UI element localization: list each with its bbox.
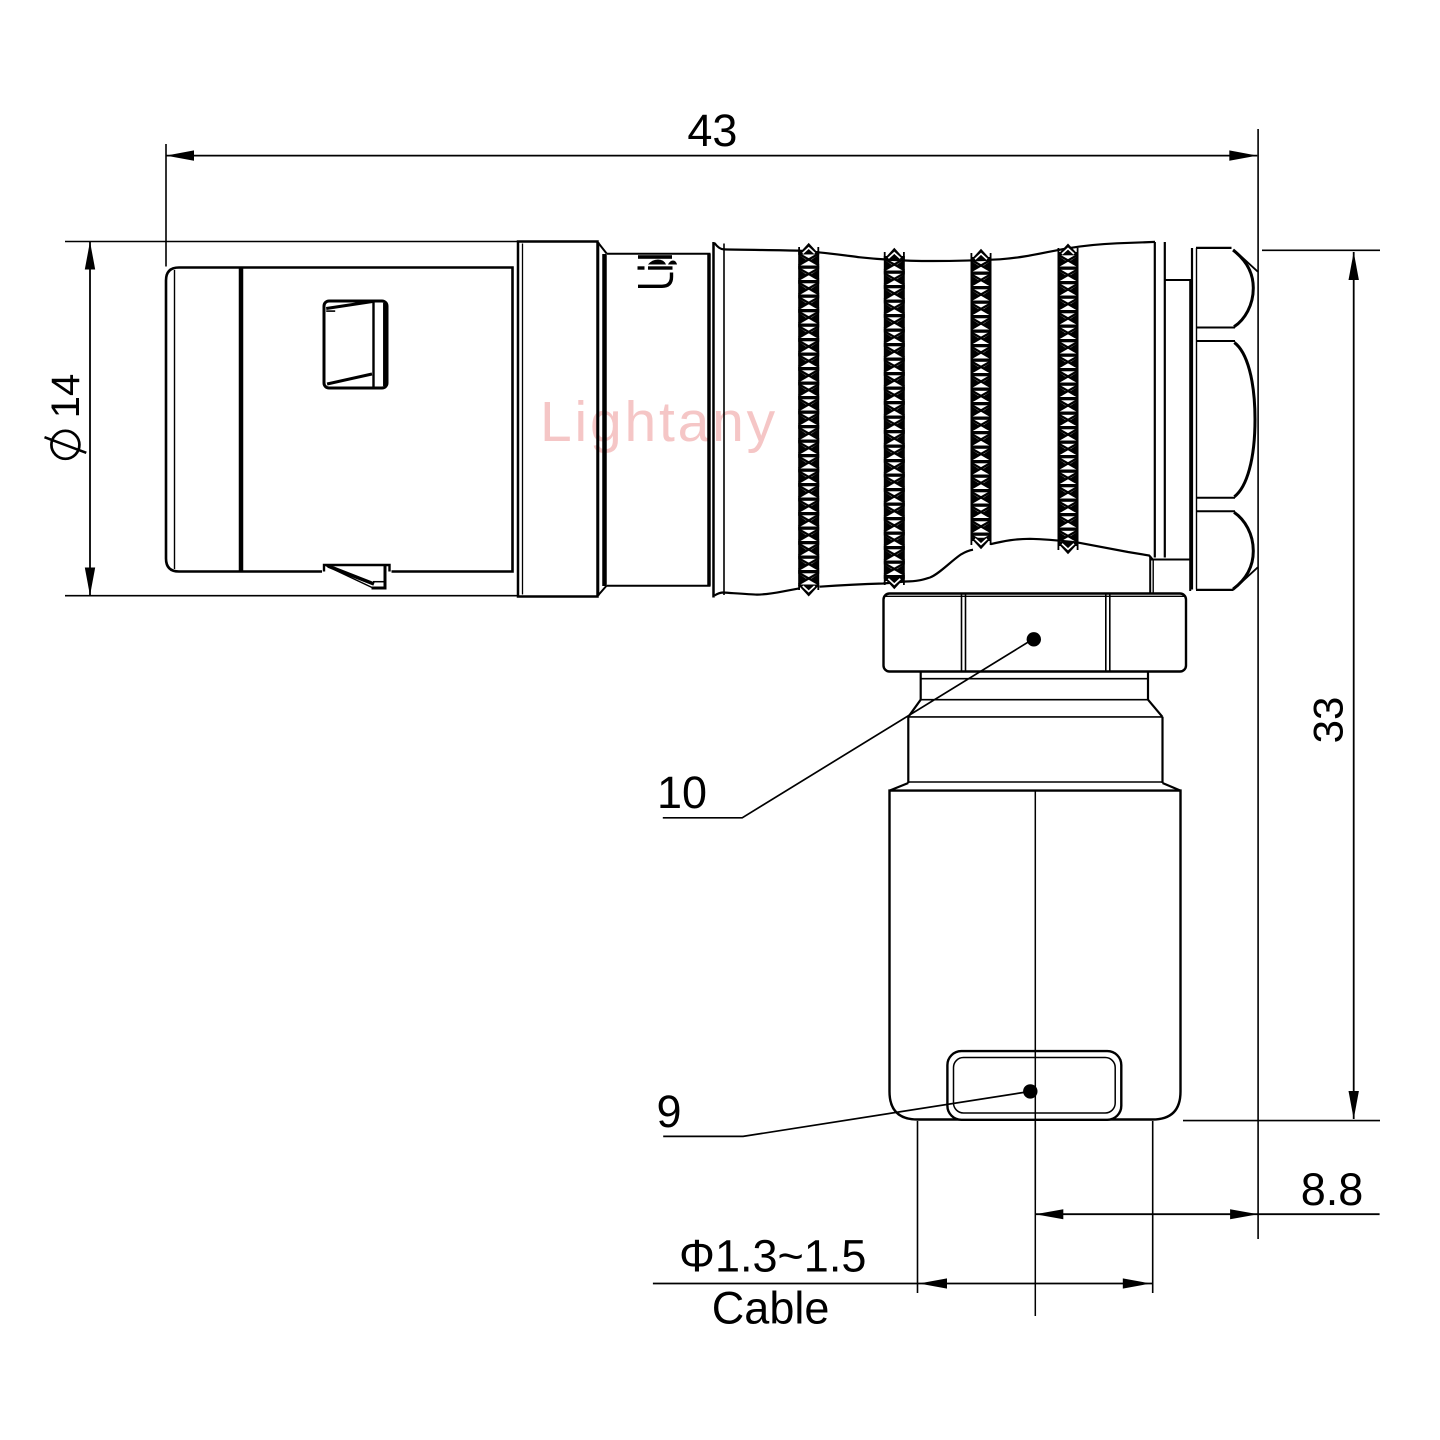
svg-text:8.8: 8.8 xyxy=(1301,1164,1364,1215)
svg-text:9: 9 xyxy=(656,1086,681,1137)
svg-text:Φ1.3~1.5: Φ1.3~1.5 xyxy=(679,1231,866,1282)
svg-text:14: 14 xyxy=(44,374,88,419)
svg-text:Cable: Cable xyxy=(712,1283,830,1334)
svg-text:43: 43 xyxy=(687,105,737,156)
svg-text:33: 33 xyxy=(1305,697,1352,744)
svg-text:Lightany: Lightany xyxy=(540,390,778,454)
svg-text:10: 10 xyxy=(657,767,707,818)
